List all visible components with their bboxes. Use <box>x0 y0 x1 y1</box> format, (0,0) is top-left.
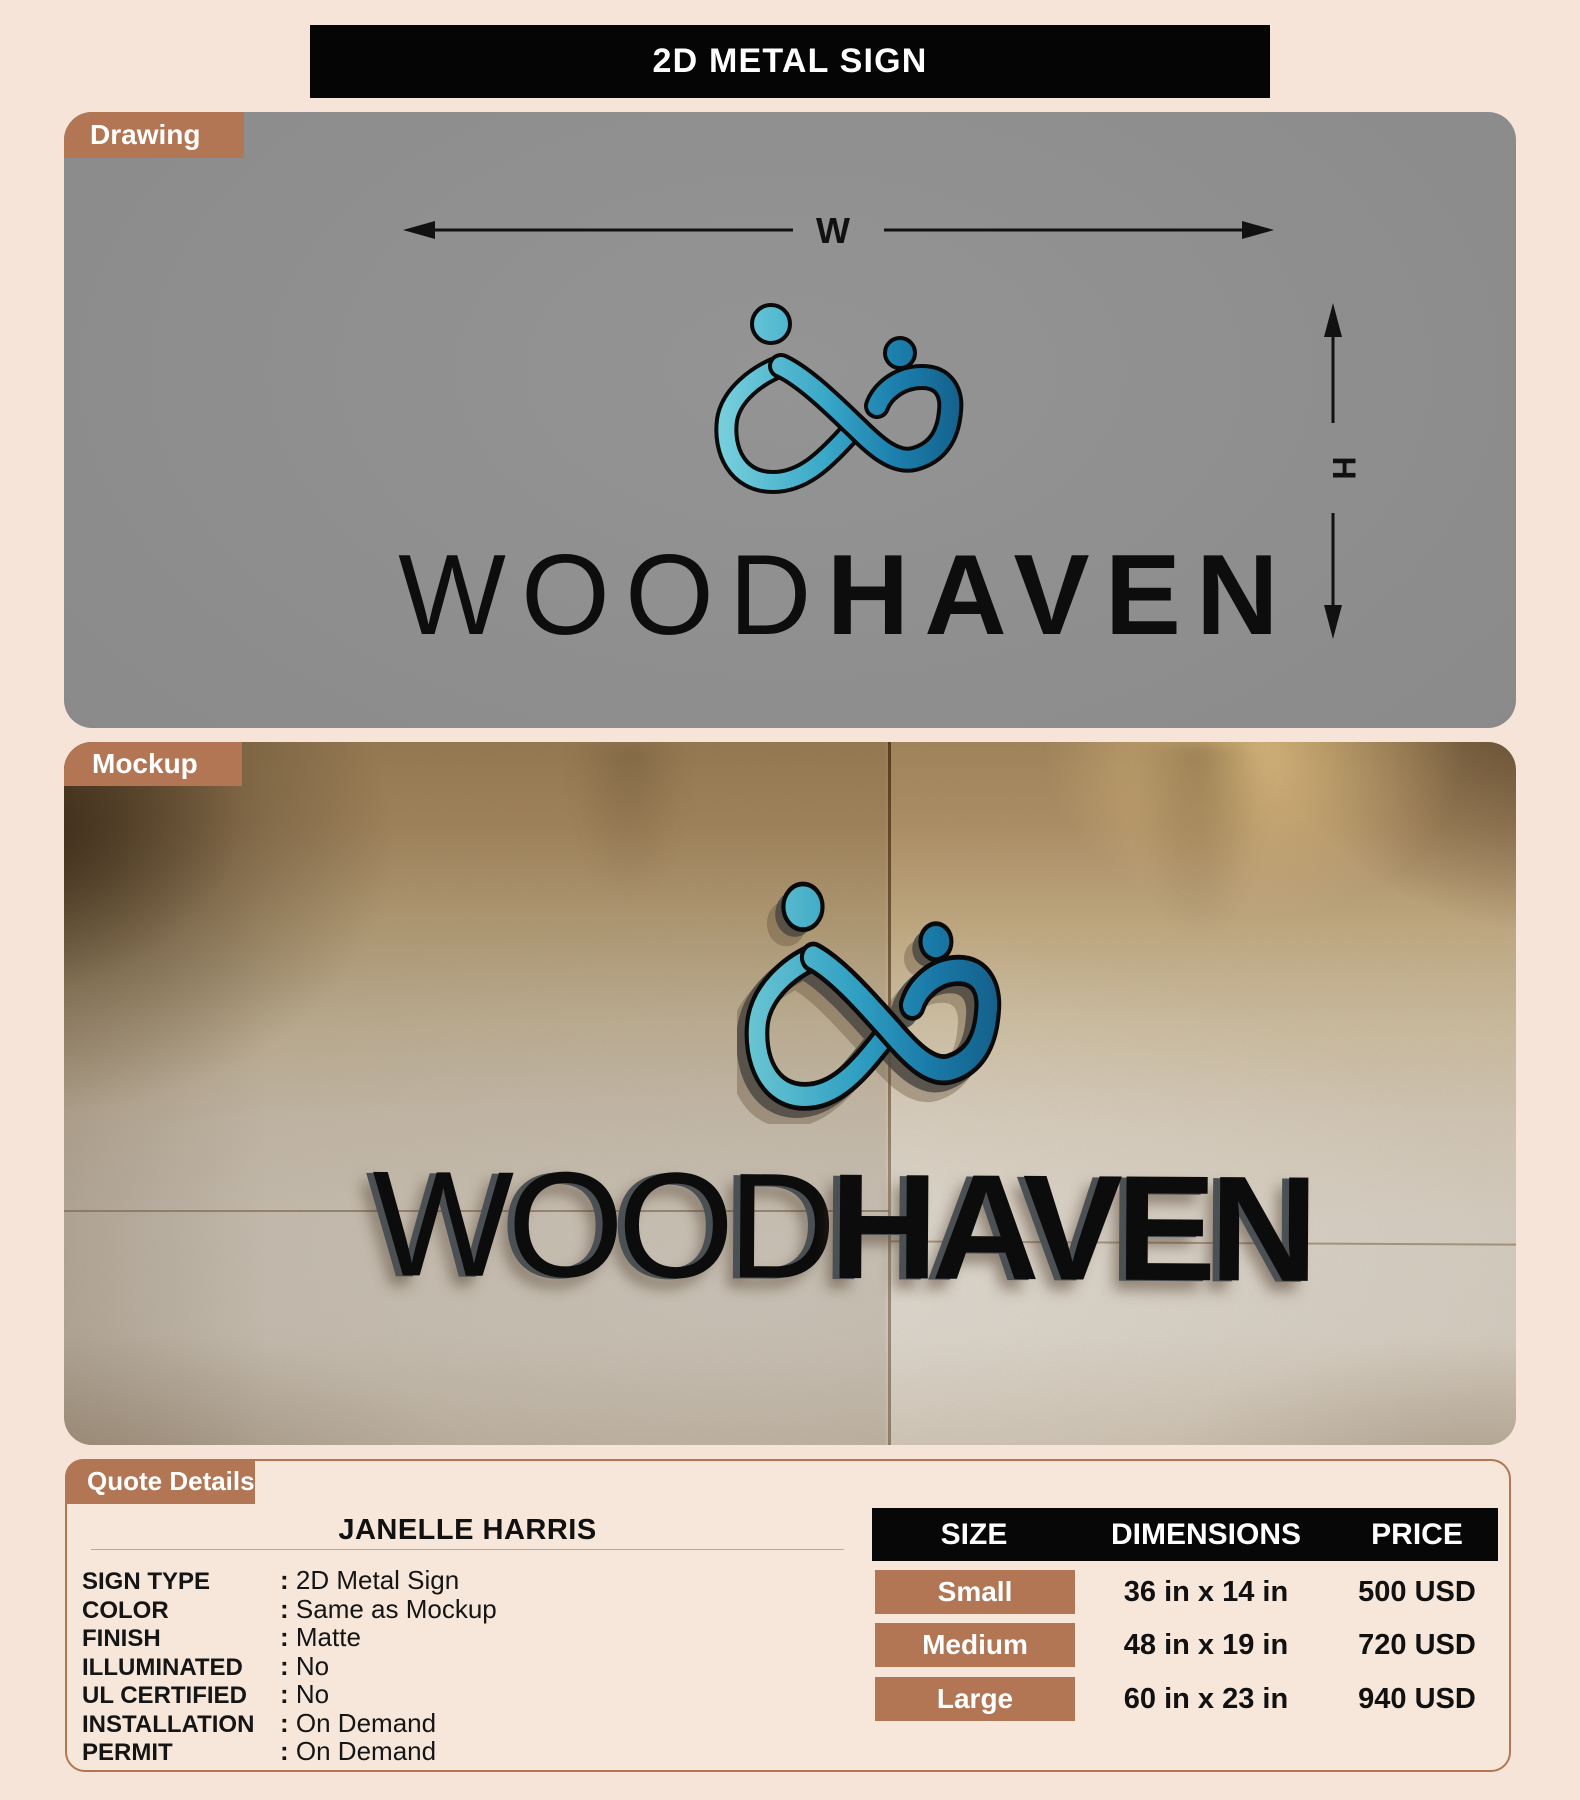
svg-text:H: H <box>1326 456 1362 479</box>
svg-text:W: W <box>816 210 850 251</box>
